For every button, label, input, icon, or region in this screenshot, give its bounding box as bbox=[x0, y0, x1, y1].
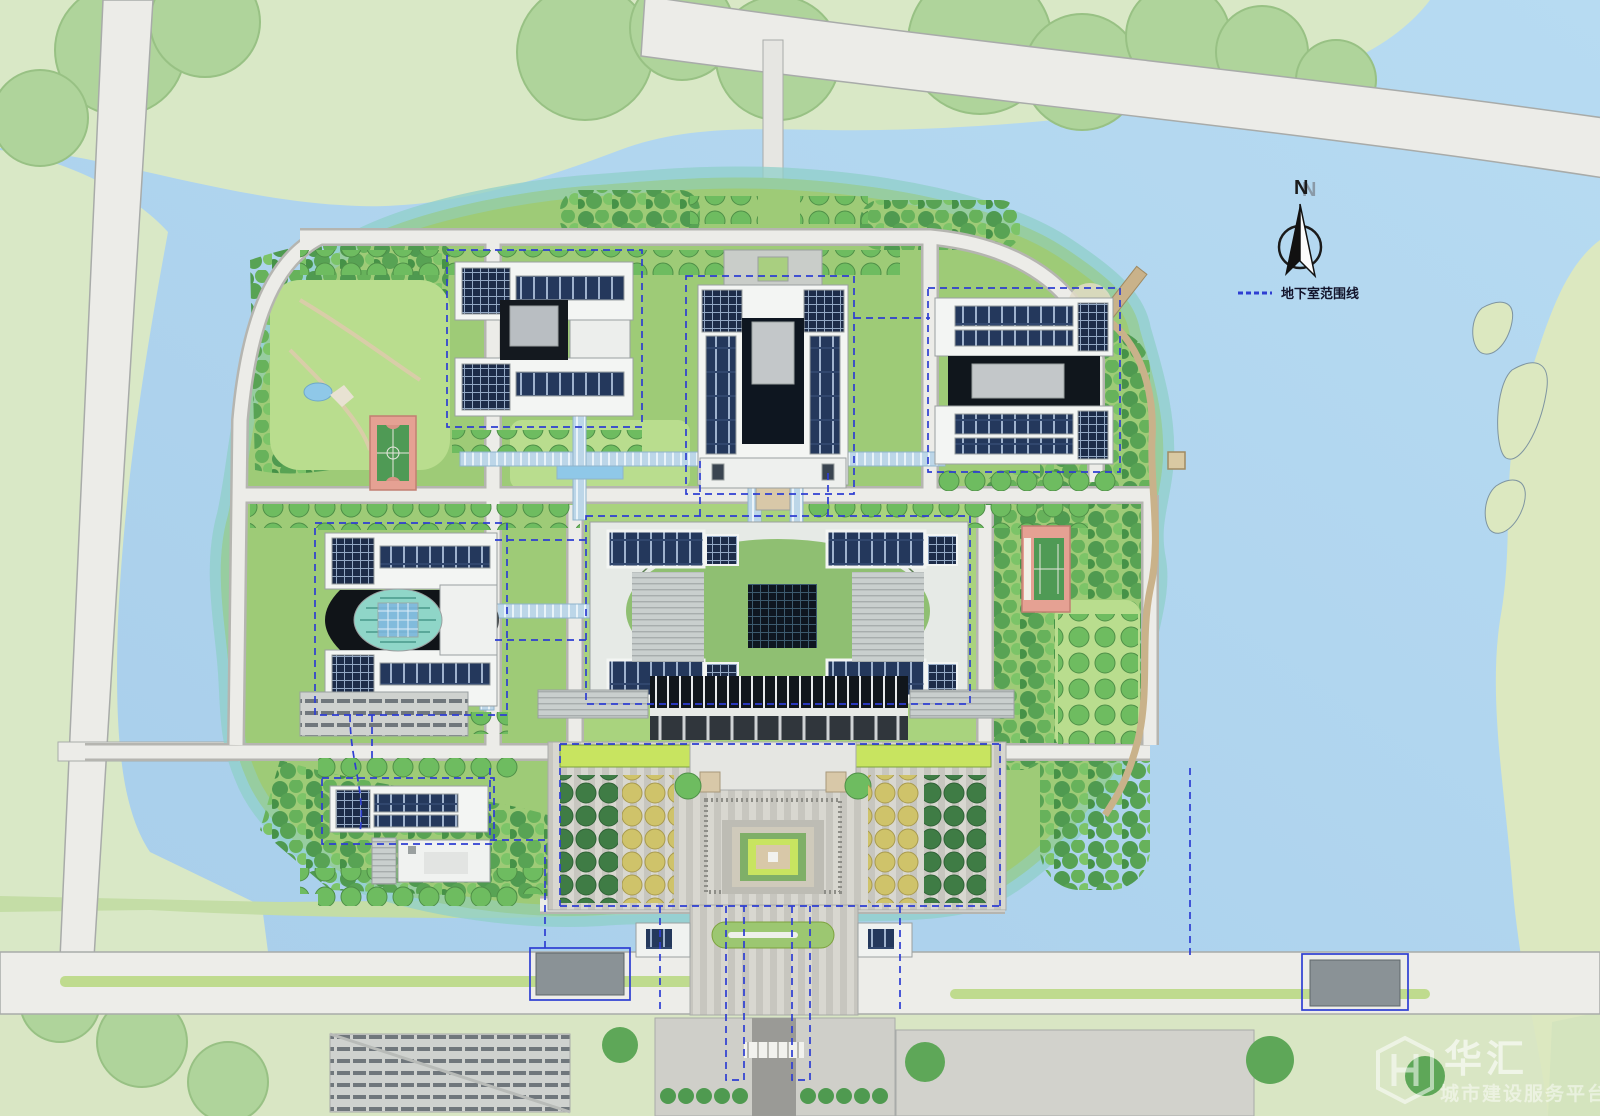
watermark-tagline: 城市建设服务平台 bbox=[1440, 1082, 1600, 1105]
plaza-southeast bbox=[896, 1030, 1254, 1116]
park-pond bbox=[304, 383, 332, 401]
building-north-center bbox=[698, 250, 848, 510]
legend-label: 地下室范围线 bbox=[1281, 286, 1359, 301]
building-west-oval bbox=[325, 533, 499, 706]
service-building-right bbox=[1310, 960, 1400, 1006]
service-building-left bbox=[536, 953, 624, 995]
shore-pavilion bbox=[1168, 452, 1185, 469]
north-label: N bbox=[1294, 177, 1308, 199]
plaza-central-feature bbox=[722, 820, 824, 894]
basketball-court bbox=[370, 416, 416, 490]
grand-plaza bbox=[548, 742, 1006, 910]
tennis-court bbox=[1022, 526, 1070, 612]
site-plan-screenshot: N N 地下室范围线 华汇 城市建设服务平台 bbox=[0, 0, 1600, 1116]
site-plan-canvas: N N 地下室范围线 华汇 城市建设服务平台 bbox=[0, 0, 1600, 1116]
building-northeast bbox=[935, 298, 1113, 464]
watermark-brand: 华汇 bbox=[1444, 1039, 1528, 1081]
water-deck bbox=[557, 466, 623, 479]
